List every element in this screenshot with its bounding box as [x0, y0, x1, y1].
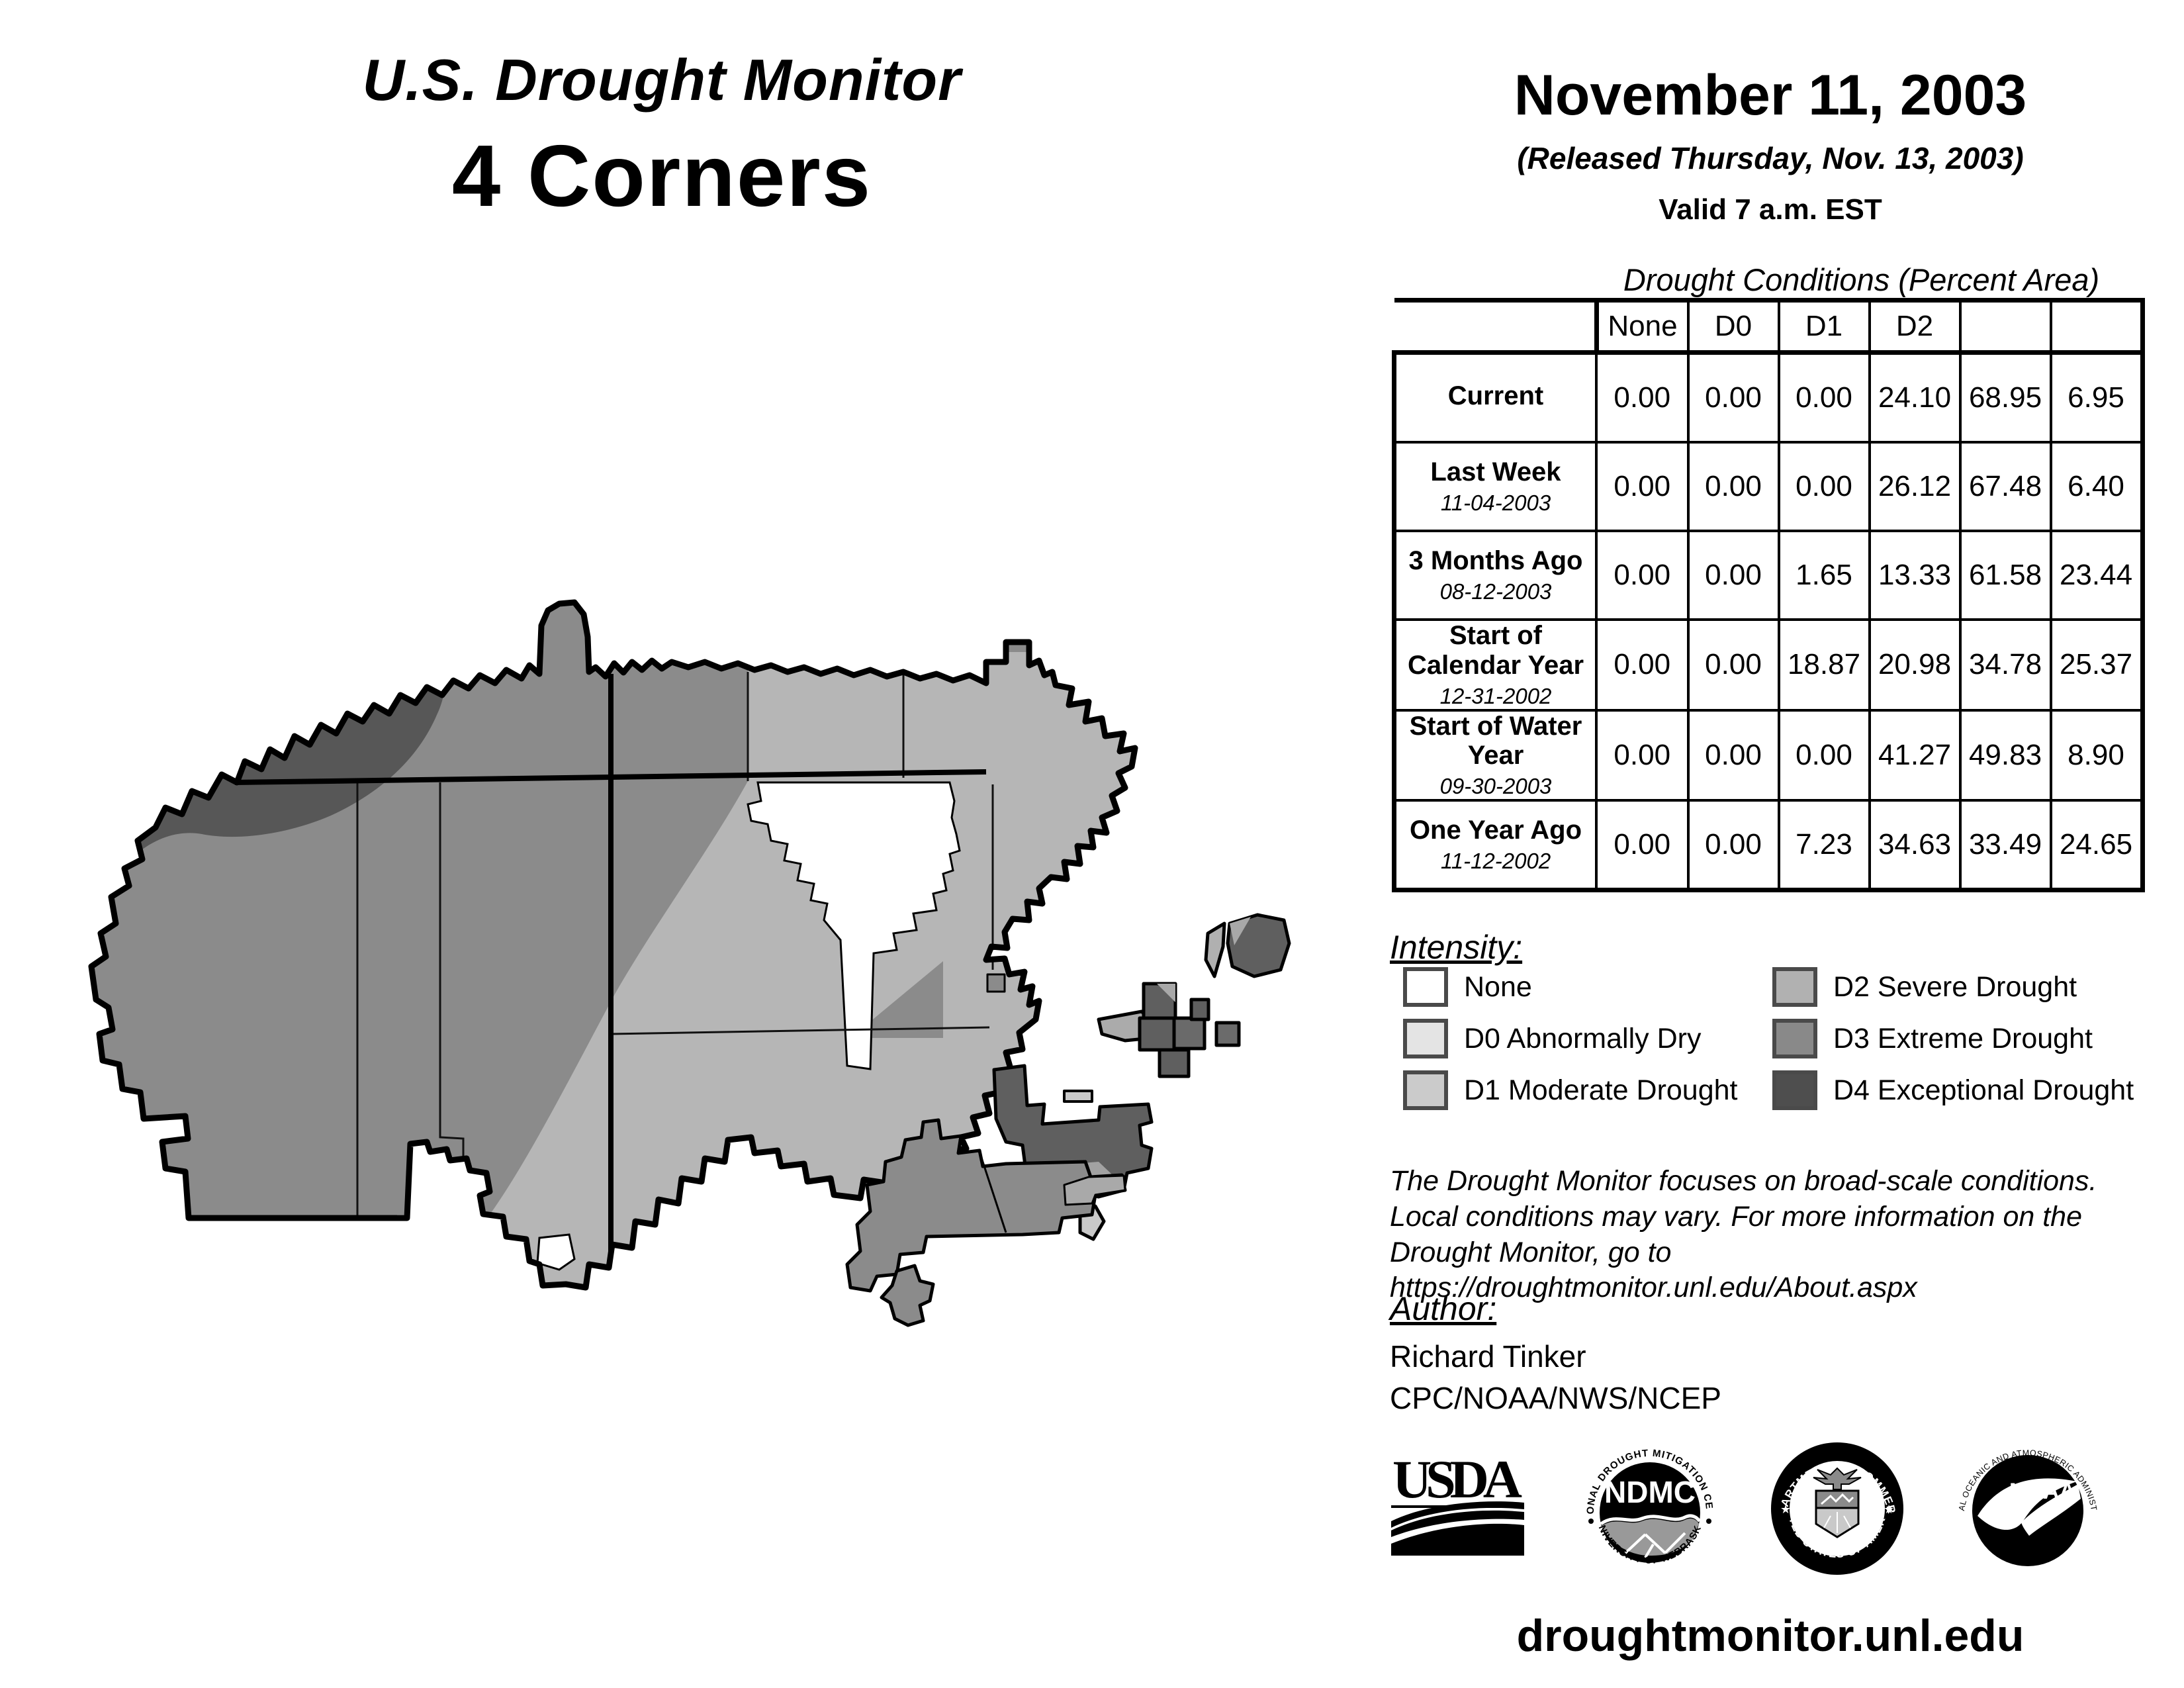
legend-label: D4 Exceptional Drought	[1817, 1074, 2134, 1107]
cell-value: 24.10	[1870, 353, 1960, 443]
region-title: 4 Corners	[0, 126, 1324, 226]
cell-value: 25.37	[2051, 620, 2143, 710]
drought-conditions-table: None D0 D1 D2 D3 D4 Current 0.00 0.00 0.…	[1392, 298, 2145, 892]
cell-value: 61.58	[1960, 531, 2051, 620]
cell-value: 0.00	[1596, 800, 1688, 890]
row-label: Current	[1394, 353, 1597, 443]
small-attached-square	[987, 974, 1005, 992]
valid-time: Valid 7 a.m. EST	[1377, 193, 2164, 226]
swatch-d4	[1772, 1070, 1817, 1110]
title-block: U.S. Drought Monitor 4 Corners	[0, 46, 1324, 226]
cell-value: 20.98	[1870, 620, 1960, 710]
col-header-d2: D2	[1870, 301, 1960, 353]
cell-value: 18.87	[1779, 620, 1870, 710]
author-name: Richard Tinker	[1390, 1338, 1586, 1374]
cell-value: 41.27	[1870, 710, 1960, 801]
disclaimer-line: Local conditions may vary. For more info…	[1390, 1199, 2184, 1235]
intensity-heading: Intensity:	[1390, 928, 1522, 966]
cell-value: 23.44	[2051, 531, 2143, 620]
cell-value: 49.83	[1960, 710, 2051, 801]
row-label: Last Week11-04-2003	[1394, 442, 1597, 531]
legend-label: D3 Extreme Drought	[1817, 1023, 2093, 1055]
cell-value: 0.00	[1596, 620, 1688, 710]
author-organization: CPC/NOAA/NWS/NCEP	[1390, 1380, 1721, 1416]
col-header-d1: D1	[1779, 301, 1870, 353]
cell-value: 8.90	[2051, 710, 2143, 801]
noaa-logo: NOAA NATIONAL OCEANIC AND ATMOSPHERIC AD…	[1958, 1438, 2098, 1583]
table-row: Start of Water Year09-30-2003 0.00 0.00 …	[1394, 710, 2143, 801]
cell-value: 34.63	[1870, 800, 1960, 890]
swatch-d2	[1772, 967, 1817, 1007]
cell-value: 0.00	[1688, 442, 1779, 531]
legend-label: D0 Abnormally Dry	[1448, 1023, 1701, 1055]
row-label: One Year Ago11-12-2002	[1394, 800, 1597, 890]
date-block: November 11, 2003 (Released Thursday, No…	[1377, 63, 2164, 226]
outlier-square	[1216, 1023, 1239, 1045]
disclaimer-line: The Drought Monitor focuses on broad-sca…	[1390, 1164, 2184, 1199]
drought-map	[66, 563, 1324, 1556]
cell-value: 0.00	[1596, 531, 1688, 620]
table-row: Current 0.00 0.00 0.00 24.10 68.95 6.95	[1394, 353, 2143, 443]
cell-value: 68.95	[1960, 353, 2051, 443]
table-title: Drought Conditions (Percent Area)	[1588, 261, 2134, 298]
legend-label: D1 Moderate Drought	[1448, 1074, 1738, 1107]
table-row: Last Week11-04-2003 0.00 0.00 0.00 26.12…	[1394, 442, 2143, 531]
legend-label: D2 Severe Drought	[1817, 971, 2077, 1004]
table-row: 3 Months Ago08-12-2003 0.00 0.00 1.65 13…	[1394, 531, 2143, 620]
cell-value: 26.12	[1870, 442, 1960, 531]
doc-star-right: ★	[1884, 1503, 1894, 1516]
cluster-block-3	[1174, 1018, 1205, 1049]
legend-item-d0: D0 Abnormally Dry	[1403, 1019, 1738, 1058]
legend-label: None	[1448, 971, 1532, 1004]
cell-value: 7.23	[1779, 800, 1870, 890]
commerce-seal: DEPARTMENT OF COMMERCE UNITED STATES OF …	[1767, 1438, 1907, 1583]
cell-value: 0.00	[1688, 710, 1779, 801]
cell-value: 6.40	[2051, 442, 2143, 531]
cluster-block-2	[1140, 1018, 1174, 1050]
cell-value: 0.00	[1596, 442, 1688, 531]
swatch-d0	[1403, 1019, 1448, 1058]
col-header-d3: D3	[1960, 301, 2051, 353]
cluster-block-4	[1160, 1050, 1189, 1076]
drought-monitor-page: U.S. Drought Monitor 4 Corners	[0, 0, 2184, 1688]
legend-item-d1: D1 Moderate Drought	[1403, 1071, 1738, 1109]
cell-value: 0.00	[1688, 353, 1779, 443]
disclaimer-text: The Drought Monitor focuses on broad-sca…	[1390, 1164, 2184, 1306]
cell-value: 34.78	[1960, 620, 2051, 710]
swatch-d3	[1772, 1019, 1817, 1058]
cell-value: 1.65	[1779, 531, 1870, 620]
col-header-d4: D4	[2051, 301, 2143, 353]
usda-logo: USDA	[1390, 1456, 1525, 1566]
cell-value: 67.48	[1960, 442, 2051, 531]
cell-value: 0.00	[1596, 353, 1688, 443]
page-title: U.S. Drought Monitor	[0, 46, 1324, 114]
ndmc-logo: NDMC NATIONAL DROUGHT MITIGATION CENTER …	[1579, 1442, 1721, 1587]
noaa-center-text: NOAA	[2009, 1479, 2075, 1504]
cell-value: 0.00	[1688, 620, 1779, 710]
footer-url: droughtmonitor.unl.edu	[1377, 1610, 2164, 1662]
cell-value: 0.00	[1688, 531, 1779, 620]
cell-value: 0.00	[1779, 442, 1870, 531]
swatch-none	[1403, 967, 1448, 1007]
row-label: 3 Months Ago08-12-2003	[1394, 531, 1597, 620]
col-header-none: None	[1596, 301, 1688, 353]
legend-column-2: D2 Severe Drought D3 Extreme Drought D4 …	[1772, 968, 2134, 1123]
table-header-row: None D0 D1 D2 D3 D4	[1394, 301, 2143, 353]
cell-value: 13.33	[1870, 531, 1960, 620]
mid-dash	[1064, 1091, 1092, 1102]
author-heading: Author:	[1390, 1289, 1496, 1328]
cell-value: 24.65	[2051, 800, 2143, 890]
legend-item-d3: D3 Extreme Drought	[1772, 1019, 2134, 1058]
swatch-d1	[1403, 1070, 1448, 1110]
usda-text: USDA	[1392, 1456, 1522, 1509]
outlier-arrow	[1206, 923, 1224, 976]
ndmc-center-text: NDMC	[1604, 1475, 1696, 1509]
legend-item-none: None	[1403, 968, 1738, 1006]
legend-column-1: None D0 Abnormally Dry D1 Moderate Droug…	[1403, 968, 1738, 1123]
table-corner-blank	[1394, 301, 1597, 353]
cell-value: 6.95	[2051, 353, 2143, 443]
cell-value: 0.00	[1779, 710, 1870, 801]
cell-value: 0.00	[1779, 353, 1870, 443]
legend-item-d2: D2 Severe Drought	[1772, 968, 2134, 1006]
table-row: Start of Calendar Year12-31-2002 0.00 0.…	[1394, 620, 2143, 710]
legend-item-d4: D4 Exceptional Drought	[1772, 1071, 2134, 1109]
row-label: Start of Calendar Year12-31-2002	[1394, 620, 1597, 710]
disclaimer-line: Drought Monitor, go to https://droughtmo…	[1390, 1235, 2184, 1307]
row-label: Start of Water Year09-30-2003	[1394, 710, 1597, 801]
released-date: (Released Thursday, Nov. 13, 2003)	[1377, 140, 2164, 176]
cluster-block-5	[1191, 1000, 1208, 1019]
doc-star-left: ★	[1780, 1503, 1791, 1516]
drought-map-svg	[66, 563, 1324, 1556]
cell-value: 0.00	[1688, 800, 1779, 890]
cell-value: 33.49	[1960, 800, 2051, 890]
map-date: November 11, 2003	[1377, 63, 2164, 128]
table-row: One Year Ago11-12-2002 0.00 0.00 7.23 34…	[1394, 800, 2143, 890]
col-header-d0: D0	[1688, 301, 1779, 353]
cell-value: 0.00	[1596, 710, 1688, 801]
